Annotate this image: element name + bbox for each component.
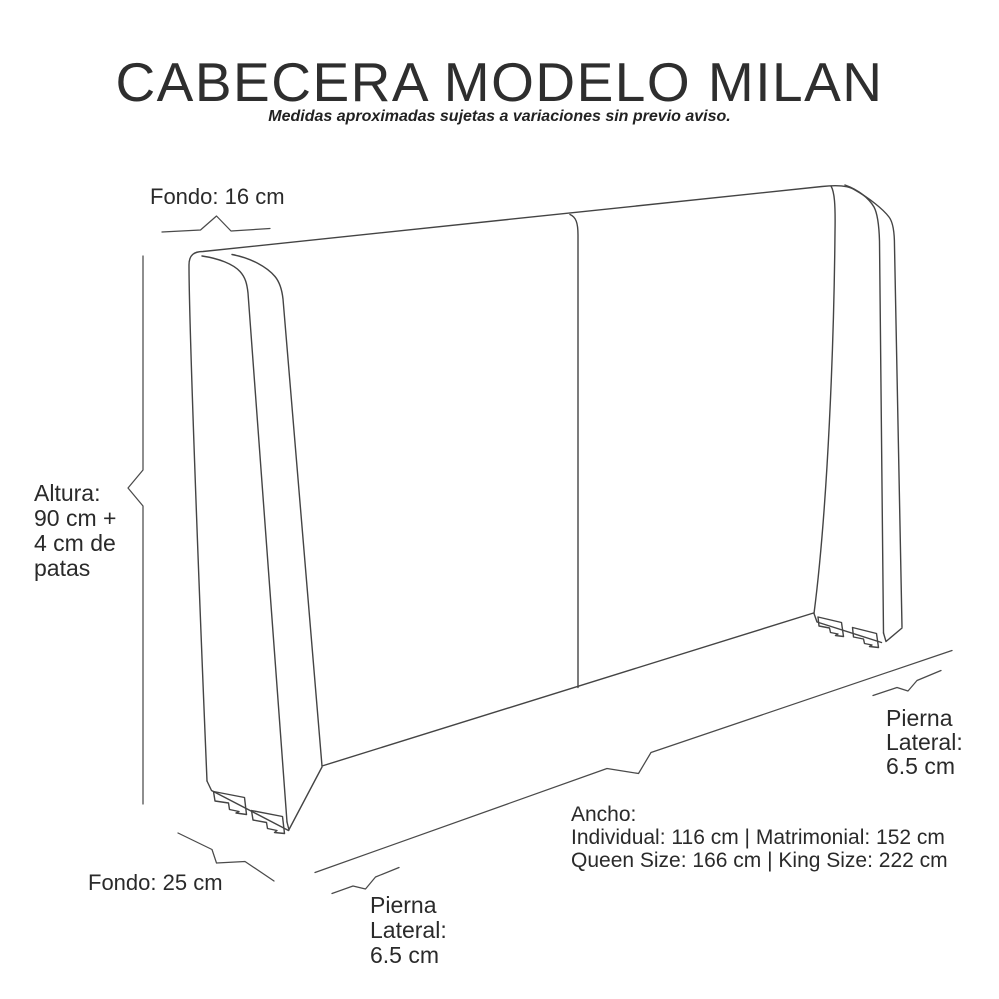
dimension-bracket-fondo-16 <box>162 216 270 232</box>
label-line: Lateral: <box>886 730 963 754</box>
label-fondo-bottom: Fondo: 25 cm <box>88 870 223 895</box>
label-line: Queen Size: 166 cm | King Size: 222 cm <box>571 849 948 872</box>
label-line: Ancho: <box>571 803 948 826</box>
panel-center-seam <box>570 215 578 688</box>
label-line: 6.5 cm <box>886 754 963 778</box>
left-leg-foot-front <box>214 792 247 815</box>
label-pierna-lateral-bottom: Pierna Lateral: 6.5 cm <box>370 893 447 968</box>
label-line: patas <box>34 556 116 581</box>
dimension-bracket-altura <box>128 256 143 804</box>
label-line: 4 cm de <box>34 531 116 556</box>
left-leg-bottom-edge <box>207 767 322 831</box>
headboard-outline <box>189 186 902 781</box>
label-line: 6.5 cm <box>370 943 447 968</box>
right-leg-front-edge <box>845 185 884 633</box>
dimension-bracket-pierna-lateral-bottom <box>332 868 399 894</box>
label-pierna-lateral-right: Pierna Lateral: 6.5 cm <box>886 706 963 778</box>
panel-bottom-edge <box>322 613 814 766</box>
label-line: Altura: <box>34 481 116 506</box>
label-ancho: Ancho: Individual: 116 cm | Matrimonial:… <box>571 803 948 872</box>
product-dimension-diagram: CABECERA MODELO MILAN Medidas aproximada… <box>0 0 999 999</box>
label-line: Lateral: <box>370 918 447 943</box>
left-leg-front-edge <box>202 256 287 822</box>
label-line: 90 cm + <box>34 506 116 531</box>
label-line: Pierna <box>370 893 447 918</box>
label-fondo-top: Fondo: 16 cm <box>150 184 285 209</box>
label-line: Individual: 116 cm | Matrimonial: 152 cm <box>571 826 948 849</box>
label-altura: Altura: 90 cm + 4 cm de patas <box>34 481 116 581</box>
right-leg-inner-edge <box>814 186 835 614</box>
label-line: Pierna <box>886 706 963 730</box>
